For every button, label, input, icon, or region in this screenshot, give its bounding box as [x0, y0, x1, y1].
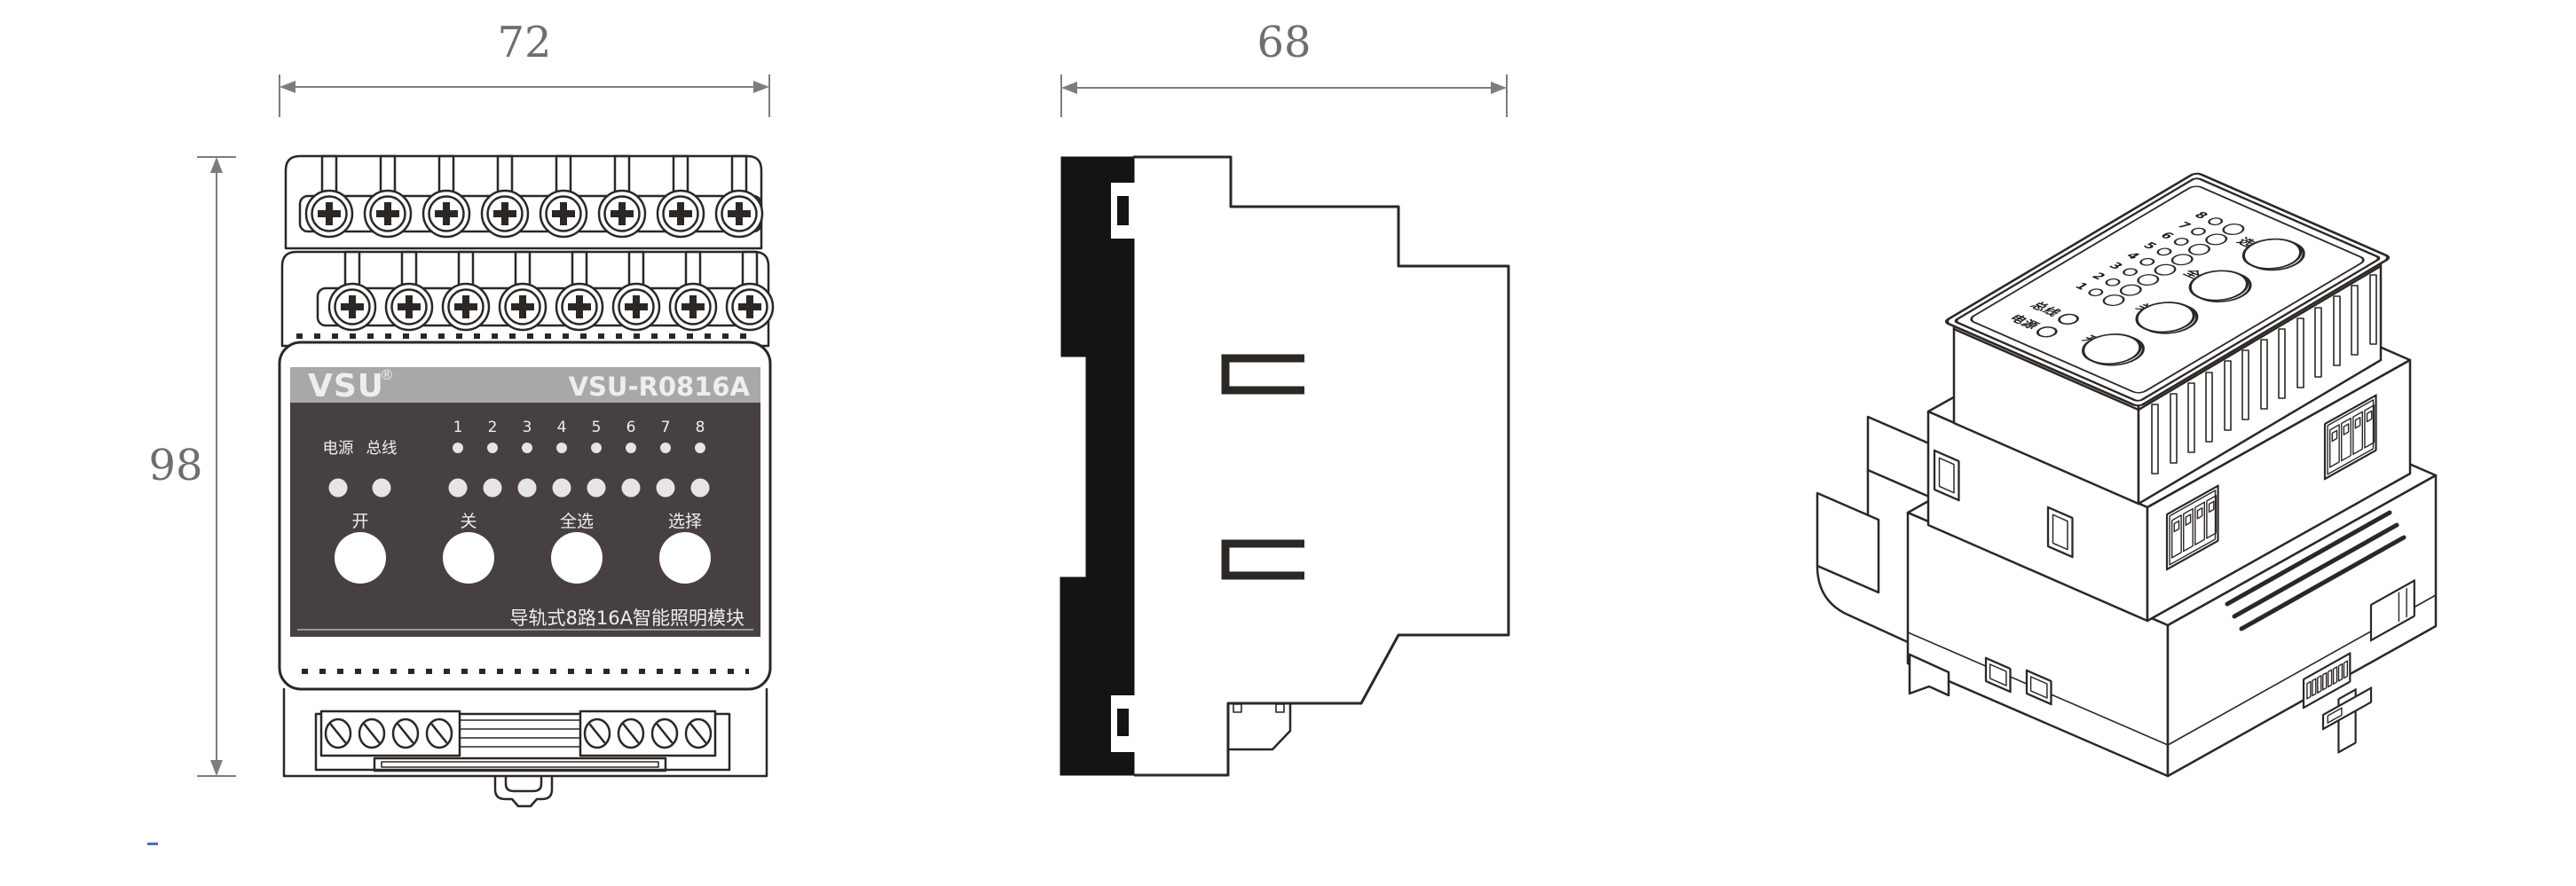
height-dimension: 98	[148, 157, 236, 776]
registered-mark: ®	[380, 366, 394, 383]
channel-number: 5	[592, 419, 602, 436]
model-number: VSU-R0816A	[569, 372, 751, 402]
bottom-terminal-area	[316, 711, 729, 771]
brand-logo: VSU	[308, 368, 384, 404]
width-dimension: 72	[280, 18, 769, 117]
select-button	[659, 532, 711, 584]
side-socket-upper	[1225, 358, 1304, 390]
channel-number: 1	[453, 419, 463, 436]
din-clip-front	[495, 776, 552, 806]
rail-notch-top	[1111, 183, 1140, 239]
channel-number: 3	[523, 419, 532, 436]
channel-number: 2	[488, 419, 498, 436]
channel-number: 6	[626, 419, 636, 436]
power-led-label: 电源	[323, 440, 354, 458]
side-clip-tick	[1233, 704, 1241, 712]
power-led	[329, 479, 348, 498]
depth-dimension: 68	[1061, 18, 1507, 117]
panel-caption: 导轨式8路16A智能照明模块	[510, 608, 744, 629]
front-view: 72 98	[148, 18, 773, 806]
off-button	[443, 532, 494, 584]
rail-notch-bottom	[1111, 695, 1140, 752]
select-button-label: 选择	[668, 512, 702, 531]
off-button-label: 关	[460, 512, 477, 531]
side-view: 68	[1060, 18, 1509, 775]
side-clip-shape	[1228, 703, 1290, 749]
select-all-button-label: 全选	[560, 512, 594, 531]
width-dimension-value: 72	[497, 18, 551, 67]
height-dimension-value: 98	[148, 441, 202, 490]
select-all-button	[551, 532, 603, 584]
bus-led-label: 总线	[366, 440, 398, 458]
side-profile-outline	[1134, 157, 1509, 775]
channel-number: 7	[661, 419, 671, 436]
channel-number: 8	[696, 419, 705, 436]
cursor-dash-artifact	[147, 843, 158, 845]
depth-dimension-value: 68	[1256, 18, 1311, 67]
din-rail-bar	[1060, 157, 1134, 775]
top-terminal-row-1	[286, 156, 762, 248]
on-button-label: 开	[351, 512, 368, 531]
side-socket-lower	[1225, 544, 1304, 576]
bus-led	[373, 479, 391, 498]
side-clip-tick	[1276, 704, 1284, 712]
technical-drawing-page: 72 98	[0, 0, 2576, 886]
top-terminal-row-2	[282, 252, 773, 346]
on-button	[335, 532, 386, 584]
isometric-view: 电源 总线 1 2 3 4 5 6 7 8 开	[1817, 172, 2436, 776]
channel-number: 4	[557, 419, 567, 436]
drawing-canvas: 72 98	[0, 0, 2576, 886]
